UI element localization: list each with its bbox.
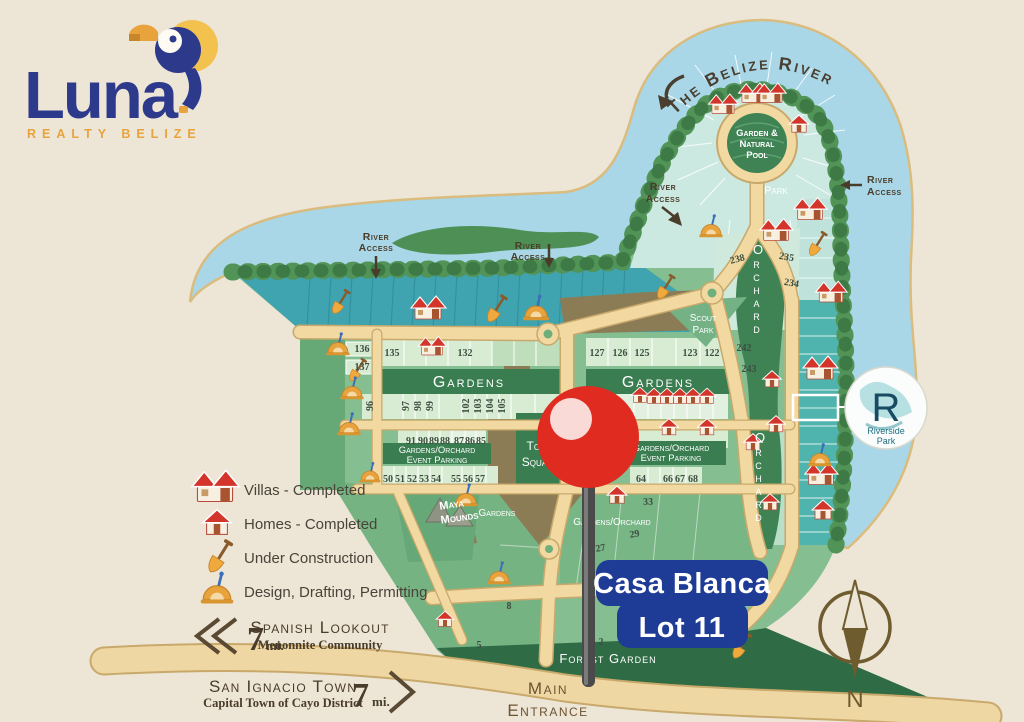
lot-136: 136 bbox=[355, 344, 370, 355]
lot-125: 125 bbox=[635, 348, 650, 359]
west-subtitle: Menonnite Community bbox=[258, 638, 383, 652]
logo-tagline: REALTY BELIZE bbox=[27, 127, 202, 141]
lot-50: 50 bbox=[383, 474, 393, 485]
lot-98: 98 bbox=[413, 401, 424, 411]
gardens-label-west: Gardens bbox=[433, 374, 505, 391]
lot-99: 99 bbox=[425, 401, 436, 411]
lot-2: 2 bbox=[599, 637, 604, 648]
lot-104: 104 bbox=[485, 399, 496, 414]
lot-52: 52 bbox=[407, 474, 417, 485]
pool-label-1: Garden & bbox=[736, 128, 778, 139]
lot-88: 88 bbox=[440, 436, 450, 447]
lot-64: 64 bbox=[636, 474, 646, 485]
lot-8: 8 bbox=[507, 601, 512, 612]
riverside-park-logo: R Riverside Park bbox=[845, 367, 927, 449]
lot-97: 97 bbox=[401, 401, 412, 411]
lot-91: 91 bbox=[406, 436, 416, 447]
lot-126: 126 bbox=[613, 348, 628, 359]
legend-label-construction: Under Construction bbox=[244, 550, 373, 567]
lot-86: 86 bbox=[465, 436, 475, 447]
lot-51: 51 bbox=[395, 474, 405, 485]
lot-132: 132 bbox=[458, 348, 473, 359]
lot-90: 90 bbox=[418, 436, 428, 447]
lot-33: 33 bbox=[643, 497, 653, 508]
lot-127: 127 bbox=[590, 348, 605, 359]
lot-29: 29 bbox=[629, 528, 641, 541]
lot-89: 89 bbox=[429, 436, 439, 447]
lot-5: 5 bbox=[477, 640, 482, 651]
lot-123: 123 bbox=[683, 348, 698, 359]
lot-67: 67 bbox=[675, 474, 685, 485]
riverside-name-1: Riverside bbox=[867, 426, 905, 436]
compass-north-label: N bbox=[846, 686, 863, 713]
river-access-label: River bbox=[867, 174, 893, 186]
legend-label-homes: Homes - Completed bbox=[244, 516, 377, 533]
lot-137: 137 bbox=[355, 362, 370, 373]
main-entrance-label-1: Main bbox=[528, 679, 568, 698]
river-access-label: River bbox=[650, 181, 676, 193]
event-parking-east-2: Event Parking bbox=[641, 453, 702, 464]
lot-53: 53 bbox=[419, 474, 429, 485]
development-map: R Riverside Park bbox=[0, 0, 1024, 722]
riverside-initial: R bbox=[872, 386, 901, 430]
orchard-label-north: Orchard bbox=[751, 242, 766, 338]
orchard-label-south: Orchard bbox=[753, 430, 768, 526]
south-subtitle: Capital Town of Cayo District bbox=[203, 696, 364, 710]
lot-122: 122 bbox=[705, 348, 720, 359]
logo-name: Luna bbox=[24, 58, 179, 133]
pin-head bbox=[537, 386, 639, 488]
lot-242: 242 bbox=[737, 343, 752, 354]
casa-blanca-badge[interactable]: Casa Blanca Lot 11 bbox=[593, 560, 771, 648]
pool-label-3: Pool bbox=[746, 150, 768, 161]
riverside-name-2: Park bbox=[877, 436, 896, 446]
lot-57: 57 bbox=[475, 474, 485, 485]
west-name: Spanish Lookout bbox=[250, 618, 389, 637]
south-unit: mi. bbox=[372, 694, 390, 709]
lot-85: 85 bbox=[476, 436, 486, 447]
park-label: Park bbox=[764, 185, 788, 197]
lot-135: 135 bbox=[385, 348, 400, 359]
river-access-label: Access bbox=[646, 193, 681, 205]
south-name: San Ignacio Town bbox=[209, 677, 357, 696]
lot-96: 96 bbox=[365, 401, 376, 411]
lot-103: 103 bbox=[473, 399, 484, 414]
lot-87: 87 bbox=[454, 436, 464, 447]
lot-102: 102 bbox=[461, 399, 472, 414]
lot-27: 27 bbox=[595, 542, 607, 555]
river-access-label: Access bbox=[359, 242, 394, 254]
lot-105: 105 bbox=[497, 399, 508, 414]
gardens-small-label: Gardens bbox=[479, 508, 516, 519]
scout-park-label-1: Scout bbox=[690, 313, 717, 324]
badge-subtitle: Lot 11 bbox=[639, 612, 726, 644]
legend-label-design: Design, Drafting, Permitting bbox=[244, 584, 427, 601]
lot-55: 55 bbox=[451, 474, 461, 485]
river-access-label: Access bbox=[867, 186, 902, 198]
lot-56: 56 bbox=[463, 474, 473, 485]
lot-66: 66 bbox=[663, 474, 673, 485]
badge-title: Casa Blanca bbox=[593, 568, 771, 600]
lot-54: 54 bbox=[431, 474, 441, 485]
main-entrance-label-2: Entrance bbox=[507, 701, 588, 720]
event-parking-west-2: Event Parking bbox=[407, 455, 468, 466]
pin-head-highlight bbox=[550, 398, 592, 440]
river-access-label: Access bbox=[511, 251, 546, 263]
pool-label-2: Natural bbox=[739, 139, 775, 150]
south-distance: 7 bbox=[352, 677, 369, 714]
gardens-label-east: Gardens bbox=[622, 374, 694, 391]
forest-garden-label: Forest Garden bbox=[559, 651, 656, 666]
map-page: R Riverside Park bbox=[0, 0, 1024, 722]
lot-243: 243 bbox=[742, 364, 757, 375]
scout-park-label-2: Park bbox=[692, 325, 713, 336]
legend-label-villas: Villas - Completed bbox=[244, 482, 365, 499]
pin-stem-highlight bbox=[584, 455, 588, 685]
west-lots bbox=[300, 333, 345, 490]
lot-68: 68 bbox=[688, 474, 698, 485]
